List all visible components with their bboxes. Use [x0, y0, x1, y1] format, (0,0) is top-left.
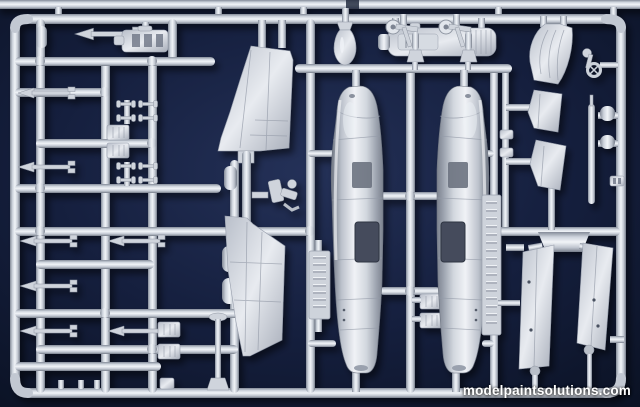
- embossed-tag-left: [309, 240, 330, 332]
- sprue-photo: modelpaintsolutions.com: [0, 0, 640, 407]
- sprue-photo-canvas: [0, 0, 640, 407]
- watermark-text: modelpaintsolutions.com: [463, 383, 631, 398]
- embossed-tag-right: [482, 195, 501, 335]
- top-runner: [0, 0, 640, 9]
- fuselage-half-left: [331, 70, 383, 373]
- fuselage-half-right: [437, 70, 489, 373]
